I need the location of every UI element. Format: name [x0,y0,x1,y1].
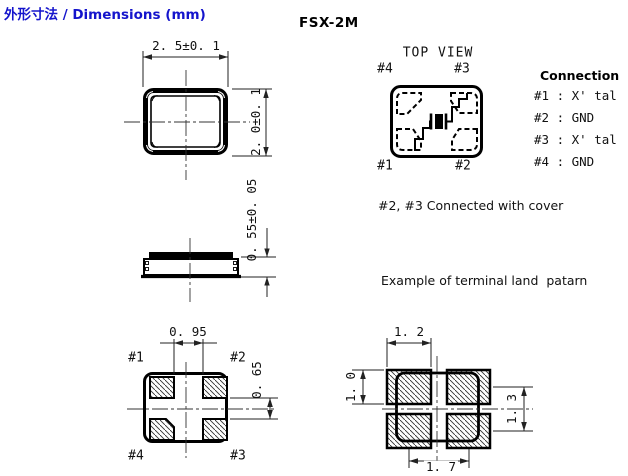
bottom-view-pin-3: #3 [230,450,246,463]
connection-row-4: #4 : GND [534,154,594,169]
top-view-drawing [392,87,482,157]
top-view-pin-1: #1 [377,160,393,173]
dim-land-width-1-2: 1. 2 [394,326,424,339]
page-title: 外形寸法 / Dimensions (mm) [4,3,206,23]
top-view-pin-3: #3 [454,63,470,76]
top-view-pin-4: #4 [377,63,393,76]
land-pattern-note: Example of terminal land patarn [381,273,587,288]
crystal-symbol [435,114,443,129]
dim-thickness-0-55: 0. 55±0. 05 [246,179,259,262]
cover-connection-note: #2, #3 Connected with cover [378,198,563,213]
bottom-view-pin-1: #1 [128,352,144,365]
connection-row-2: #2 : GND [534,110,594,125]
top-view-pin-2: #2 [455,160,471,173]
connection-row-3: #3 : X' tal [534,132,617,147]
connection-row-1: #1 : X' tal [534,88,617,103]
dim-pad-gap-0-65: 0. 65 [251,361,264,399]
connection-heading: Connection [540,68,619,83]
dim-height-2-0: 2. 0±0. 1 [250,88,263,156]
bottom-view-pin-2: #2 [230,352,246,365]
dimension-drawing-sheet: 外形寸法 / Dimensions (mm) FSX-2M 2. 5±0. 1 … [0,0,628,476]
bottom-view-pin-4: #4 [128,450,144,463]
top-view-label: TOP VIEW [403,47,474,60]
dim-land-pitch-1-3: 1. 3 [506,394,519,424]
drawing-linework [0,0,628,476]
dim-land-pitch-1-7: 1. 7 [424,461,458,474]
dim-pad-gap-0-95: 0. 95 [169,326,207,339]
dim-width-2-5: 2. 5±0. 1 [152,40,220,53]
dim-land-height-1-0: 1. 0 [345,372,358,402]
pad-4-chamfered [150,419,174,440]
part-number: FSX-2M [299,15,359,31]
